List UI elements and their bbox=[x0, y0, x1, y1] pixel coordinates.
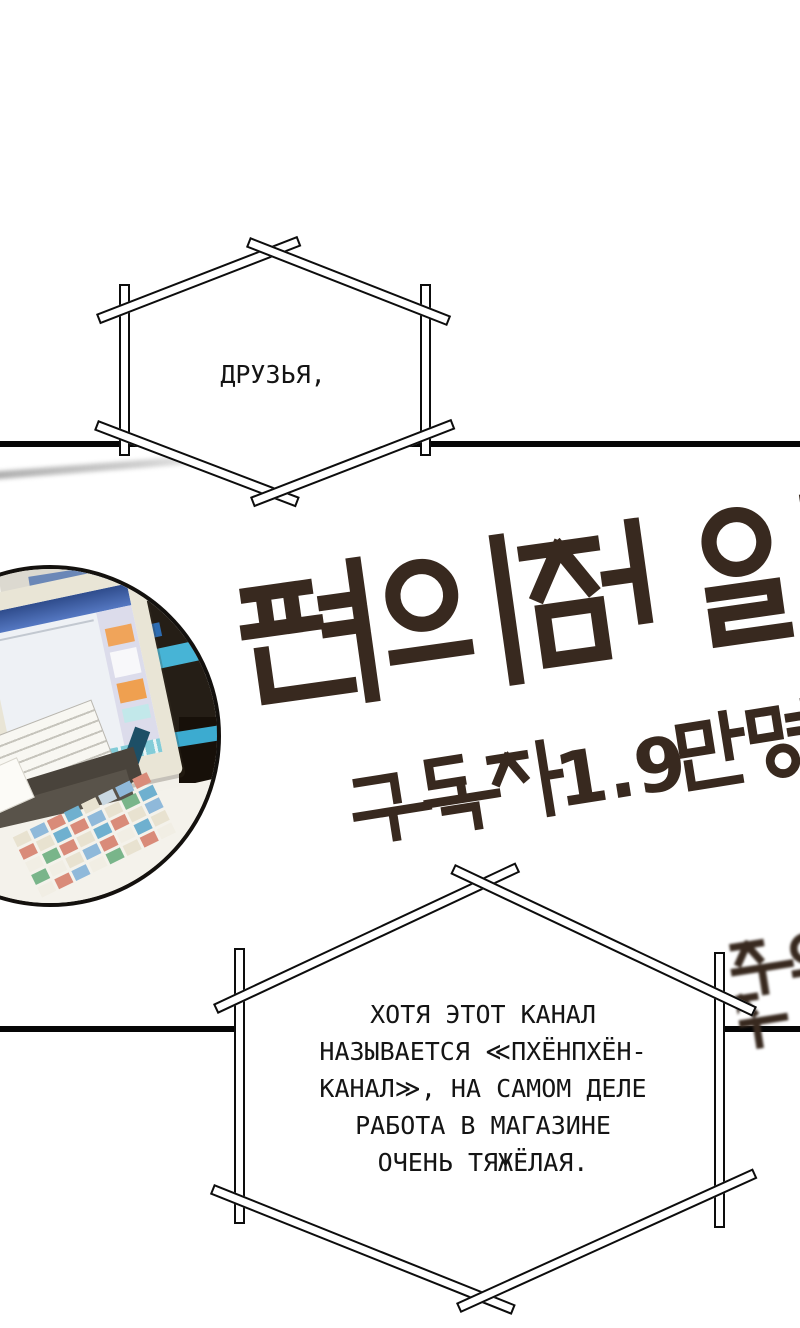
pos-register-photo bbox=[0, 565, 221, 907]
comic-page: 1.9 bbox=[0, 0, 800, 1328]
bubble-text-bottom: ХОТЯ ЭТОТ КАНАЛ НАЗЫВАЕТСЯ ≪ПХЁНПХЁН- КА… bbox=[253, 996, 713, 1181]
korean-banner-title bbox=[232, 482, 800, 732]
screen-button-white bbox=[110, 647, 142, 678]
korean-edge-text bbox=[726, 921, 800, 1065]
subscriber-digits: 1.9 bbox=[549, 719, 692, 824]
korean-subscriber-count: 1.9 bbox=[346, 695, 800, 864]
bubble-text-top: ДРУЗЬЯ, bbox=[133, 356, 413, 393]
